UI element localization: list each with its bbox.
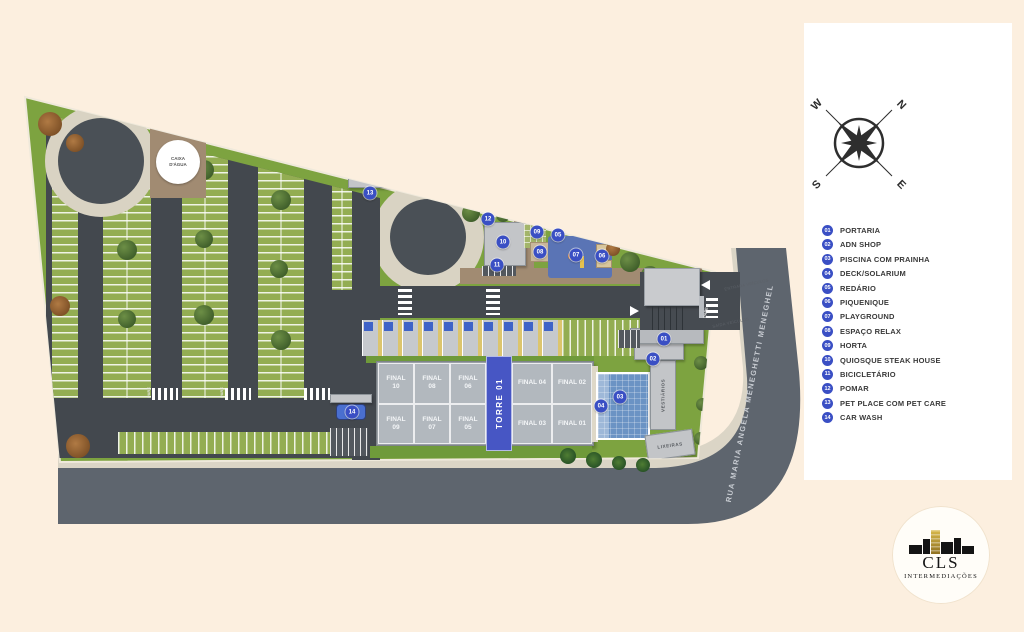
tower-hedge	[370, 446, 592, 458]
bush-icon	[66, 134, 84, 152]
legend-label: ADN SHOP	[840, 240, 881, 249]
legend-label: PISCINA COM PRAINHA	[840, 255, 930, 264]
unit-label: FINAL 03	[512, 404, 552, 445]
water-tank-label: CAIXA D'ÁGUA	[165, 156, 191, 168]
lixeiras-building: LIXEIRAS	[644, 429, 695, 461]
legend-item: 05REDÁRIO	[822, 283, 1008, 294]
legend-item: 06PIQUENIQUE	[822, 297, 1008, 308]
accessible-symbols	[364, 322, 562, 331]
legend-label: PLAYGROUND	[840, 312, 895, 321]
vestiarios-building: VESTIÁRIOS	[650, 360, 676, 430]
vestiarios-label: VESTIÁRIOS	[661, 378, 666, 411]
legend-item: 10QUIOSQUE STEAK HOUSE	[822, 355, 1008, 366]
legend-item: 02ADN SHOP	[822, 239, 1008, 250]
compass-w: W	[809, 97, 825, 113]
legend-label: QUIOSQUE STEAK HOUSE	[840, 356, 941, 365]
tree-icon	[270, 260, 288, 278]
tree-icon	[118, 310, 136, 328]
water-tank: CAIXA D'ÁGUA	[156, 140, 200, 184]
car-wash-car	[336, 404, 366, 420]
legend-marker-icon: 07	[822, 311, 833, 322]
legend-label: BICICLETÁRIO	[840, 370, 896, 379]
compass-n: N	[894, 98, 908, 112]
tree-icon	[117, 240, 137, 260]
legend-item: 03PISCINA COM PRAINHA	[822, 254, 1008, 265]
torre-01-strip: TORRE 01	[486, 356, 512, 451]
logo-subtitle: INTERMEDIAÇÕES	[904, 573, 978, 580]
arrow-right-icon	[630, 306, 644, 316]
legend-marker-icon: 08	[822, 326, 833, 337]
quiosque-steak-house	[484, 222, 526, 266]
legend-item: 12POMAR	[822, 383, 1008, 394]
parking-row	[118, 432, 358, 454]
tree-icon	[271, 330, 291, 350]
legend-label: POMAR	[840, 384, 869, 393]
legend-marker-icon: 04	[822, 268, 833, 279]
palm-icon	[612, 456, 626, 470]
gatehouse-roof	[644, 268, 700, 306]
moto-parking	[330, 428, 368, 456]
bush-icon	[38, 112, 62, 136]
tree-icon	[195, 230, 213, 248]
legend-marker-icon: 10	[822, 355, 833, 366]
accessible-parking	[362, 320, 562, 356]
tree-icon	[271, 190, 291, 210]
brand-logo: CLS INTERMEDIAÇÕES	[892, 506, 990, 604]
palm-icon	[560, 448, 576, 464]
unit-label: FINAL 10	[378, 363, 414, 404]
pool	[596, 372, 650, 440]
tree-icon	[620, 252, 640, 272]
legend-item: 09HORTA	[822, 340, 1008, 351]
legend-marker-icon: 01	[822, 225, 833, 236]
legend-label: DECK/SOLARIUM	[840, 269, 906, 278]
picnic-table	[596, 260, 612, 268]
info-panel: W N S E 01PORTARIA02ADN SHOP03PISCINA CO…	[804, 23, 1012, 480]
legend-marker-icon: 14	[822, 412, 833, 423]
crosswalk	[225, 388, 251, 400]
pare-road-marking: PARE	[219, 387, 224, 398]
legend-item: 07PLAYGROUND	[822, 311, 1008, 322]
gate-arms	[652, 306, 686, 330]
cul-de-sac-asphalt	[390, 199, 466, 275]
unit-label: FINAL 04	[512, 363, 552, 404]
legend-label: PORTARIA	[840, 226, 880, 235]
lixeiras-label: LIXEIRAS	[657, 441, 683, 450]
palm-icon	[636, 458, 650, 472]
legend-label: REDÁRIO	[840, 284, 876, 293]
playground-toy-icon	[580, 256, 584, 268]
portaria-building	[630, 328, 704, 344]
crosswalk	[152, 388, 178, 400]
logo-skyline-icon	[909, 530, 974, 554]
legend-marker-icon: 13	[822, 398, 833, 409]
unit-label: FINAL 01	[552, 404, 592, 445]
crosswalk	[486, 289, 500, 315]
adn-shop-building	[634, 342, 684, 360]
pare-road-marking: PARE	[146, 387, 151, 398]
unit-label: FINAL 06	[450, 363, 486, 404]
unit-label: FINAL 05	[450, 404, 486, 445]
cul-de-sac-asphalt	[58, 118, 144, 204]
parking-row	[332, 175, 352, 290]
legend-item: 04DECK/SOLARIUM	[822, 268, 1008, 279]
unit-label: FINAL 09	[378, 404, 414, 445]
legend-marker-icon: 02	[822, 239, 833, 250]
torre-01-label: TORRE 01	[495, 378, 504, 429]
legend-label: CAR WASH	[840, 413, 882, 422]
legend-label: PET PLACE COM PET CARE	[840, 399, 946, 408]
arrow-left-icon	[696, 280, 710, 290]
legend-item: 13PET PLACE COM PET CARE	[822, 398, 1008, 409]
bush-icon	[66, 434, 90, 458]
crosswalk	[304, 388, 330, 400]
legend-marker-icon: 03	[822, 254, 833, 265]
logo-name: CLS	[922, 554, 959, 571]
crosswalk	[398, 289, 412, 315]
compass-e: E	[894, 178, 908, 192]
legend-item: 01PORTARIA	[822, 225, 1008, 236]
legend-item: 14CAR WASH	[822, 412, 1008, 423]
unit-label: FINAL 08	[414, 363, 450, 404]
tree-icon	[194, 305, 214, 325]
legend-label: ESPAÇO RELAX	[840, 327, 901, 336]
legend-marker-icon: 06	[822, 297, 833, 308]
unit-label: FINAL 02	[552, 363, 592, 404]
unit-label: FINAL 07	[414, 404, 450, 445]
legend-item: 08ESPAÇO RELAX	[822, 326, 1008, 337]
playground-toy-icon	[568, 252, 576, 260]
legend-label: PIQUENIQUE	[840, 298, 889, 307]
legend-label: HORTA	[840, 341, 867, 350]
legend-marker-icon: 12	[822, 383, 833, 394]
site-plan-flyer: PARE PARE CAIXA D'ÁGUA	[0, 0, 1024, 632]
car-wash-roof	[330, 394, 372, 403]
legend-list: 01PORTARIA02ADN SHOP03PISCINA COM PRAINH…	[822, 225, 1008, 426]
palm-icon	[586, 452, 602, 468]
bike-rack	[482, 266, 516, 276]
legend-marker-icon: 05	[822, 283, 833, 294]
bush-icon	[50, 296, 70, 316]
pool-prainha	[598, 374, 609, 438]
legend-item: 11BICICLETÁRIO	[822, 369, 1008, 380]
legend-marker-icon: 11	[822, 369, 833, 380]
compass-rose-icon: W N S E	[804, 88, 914, 198]
bike-rack	[618, 330, 640, 348]
tree-icon	[694, 356, 708, 370]
compass-s: S	[810, 178, 824, 192]
legend-marker-icon: 09	[822, 340, 833, 351]
